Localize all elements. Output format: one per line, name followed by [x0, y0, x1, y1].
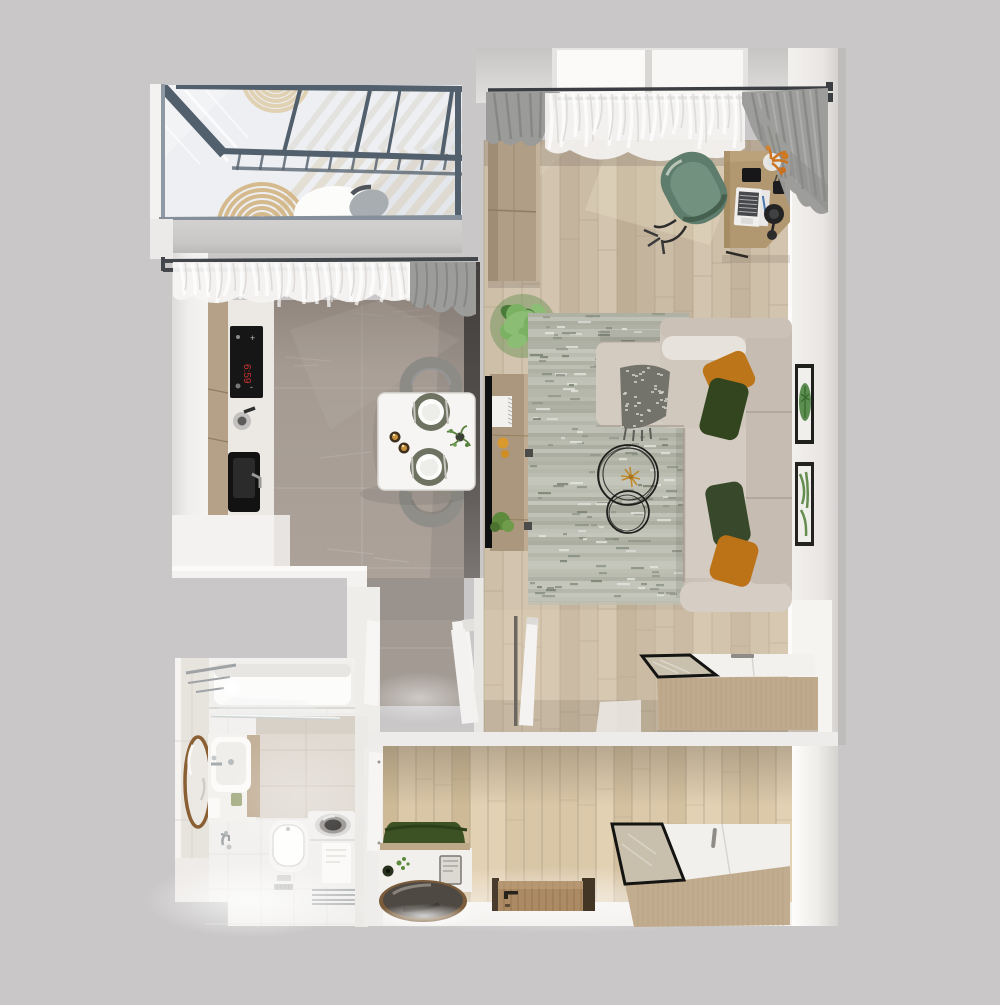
svg-text:-: - — [250, 382, 253, 392]
svg-text:+: + — [250, 333, 255, 343]
svg-text:6:59: 6:59 — [241, 364, 252, 384]
